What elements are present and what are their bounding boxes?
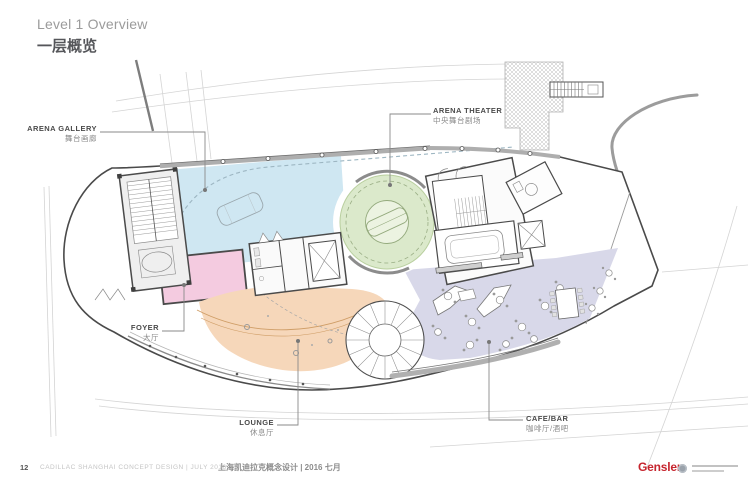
label-cafe-bar-zh: 咖啡厅/酒吧 — [526, 424, 606, 433]
label-cafe-bar-en: CAFE/BAR — [526, 414, 606, 423]
site-ramp-curve — [612, 95, 697, 177]
label-arena-gallery: ARENA GALLERY 舞台画廊 — [17, 124, 97, 144]
page-number: 12 — [20, 463, 28, 472]
label-arena-theater-zh: 中央舞台剧场 — [433, 116, 523, 125]
footer-doc-title-en: CADILLAC SHANGHAI CONCEPT DESIGN | JULY … — [40, 464, 227, 471]
label-foyer-zh: 大厅 — [79, 333, 159, 342]
gensler-logo: Gensler — [638, 460, 681, 474]
spiral-stair — [346, 301, 424, 379]
partner-logo-mark-icon — [678, 464, 687, 473]
label-arena-theater: ARENA THEATER 中央舞台剧场 — [433, 106, 523, 126]
label-lounge-zh: 休息厅 — [214, 428, 274, 437]
label-lounge: LOUNGE 休息厅 — [214, 418, 274, 438]
arena-theater-circle — [333, 168, 441, 276]
label-arena-gallery-zh: 舞台画廊 — [17, 134, 97, 143]
partner-logo-text-line — [692, 465, 738, 467]
label-foyer-en: FOYER — [79, 323, 159, 332]
label-cafe-bar: CAFE/BAR 咖啡厅/酒吧 — [526, 414, 606, 434]
label-arena-theater-en: ARENA THEATER — [433, 106, 523, 115]
slide: Level 1 Overview 一层概览 — [0, 0, 750, 485]
exterior-stair — [550, 82, 603, 97]
floor-plan-drawing — [0, 0, 750, 485]
partner-logo-text — [692, 465, 738, 472]
label-foyer: FOYER 大厅 — [79, 323, 159, 343]
partner-logo-text-line — [692, 470, 724, 472]
label-arena-gallery-en: ARENA GALLERY — [17, 124, 97, 133]
label-lounge-en: LOUNGE — [214, 418, 274, 427]
footer-doc-title-zh: 上海凯迪拉克概念设计 | 2016 七月 — [218, 462, 341, 473]
floor-plan: ARENA GALLERY 舞台画廊 ARENA THEATER 中央舞台剧场 … — [0, 0, 750, 485]
